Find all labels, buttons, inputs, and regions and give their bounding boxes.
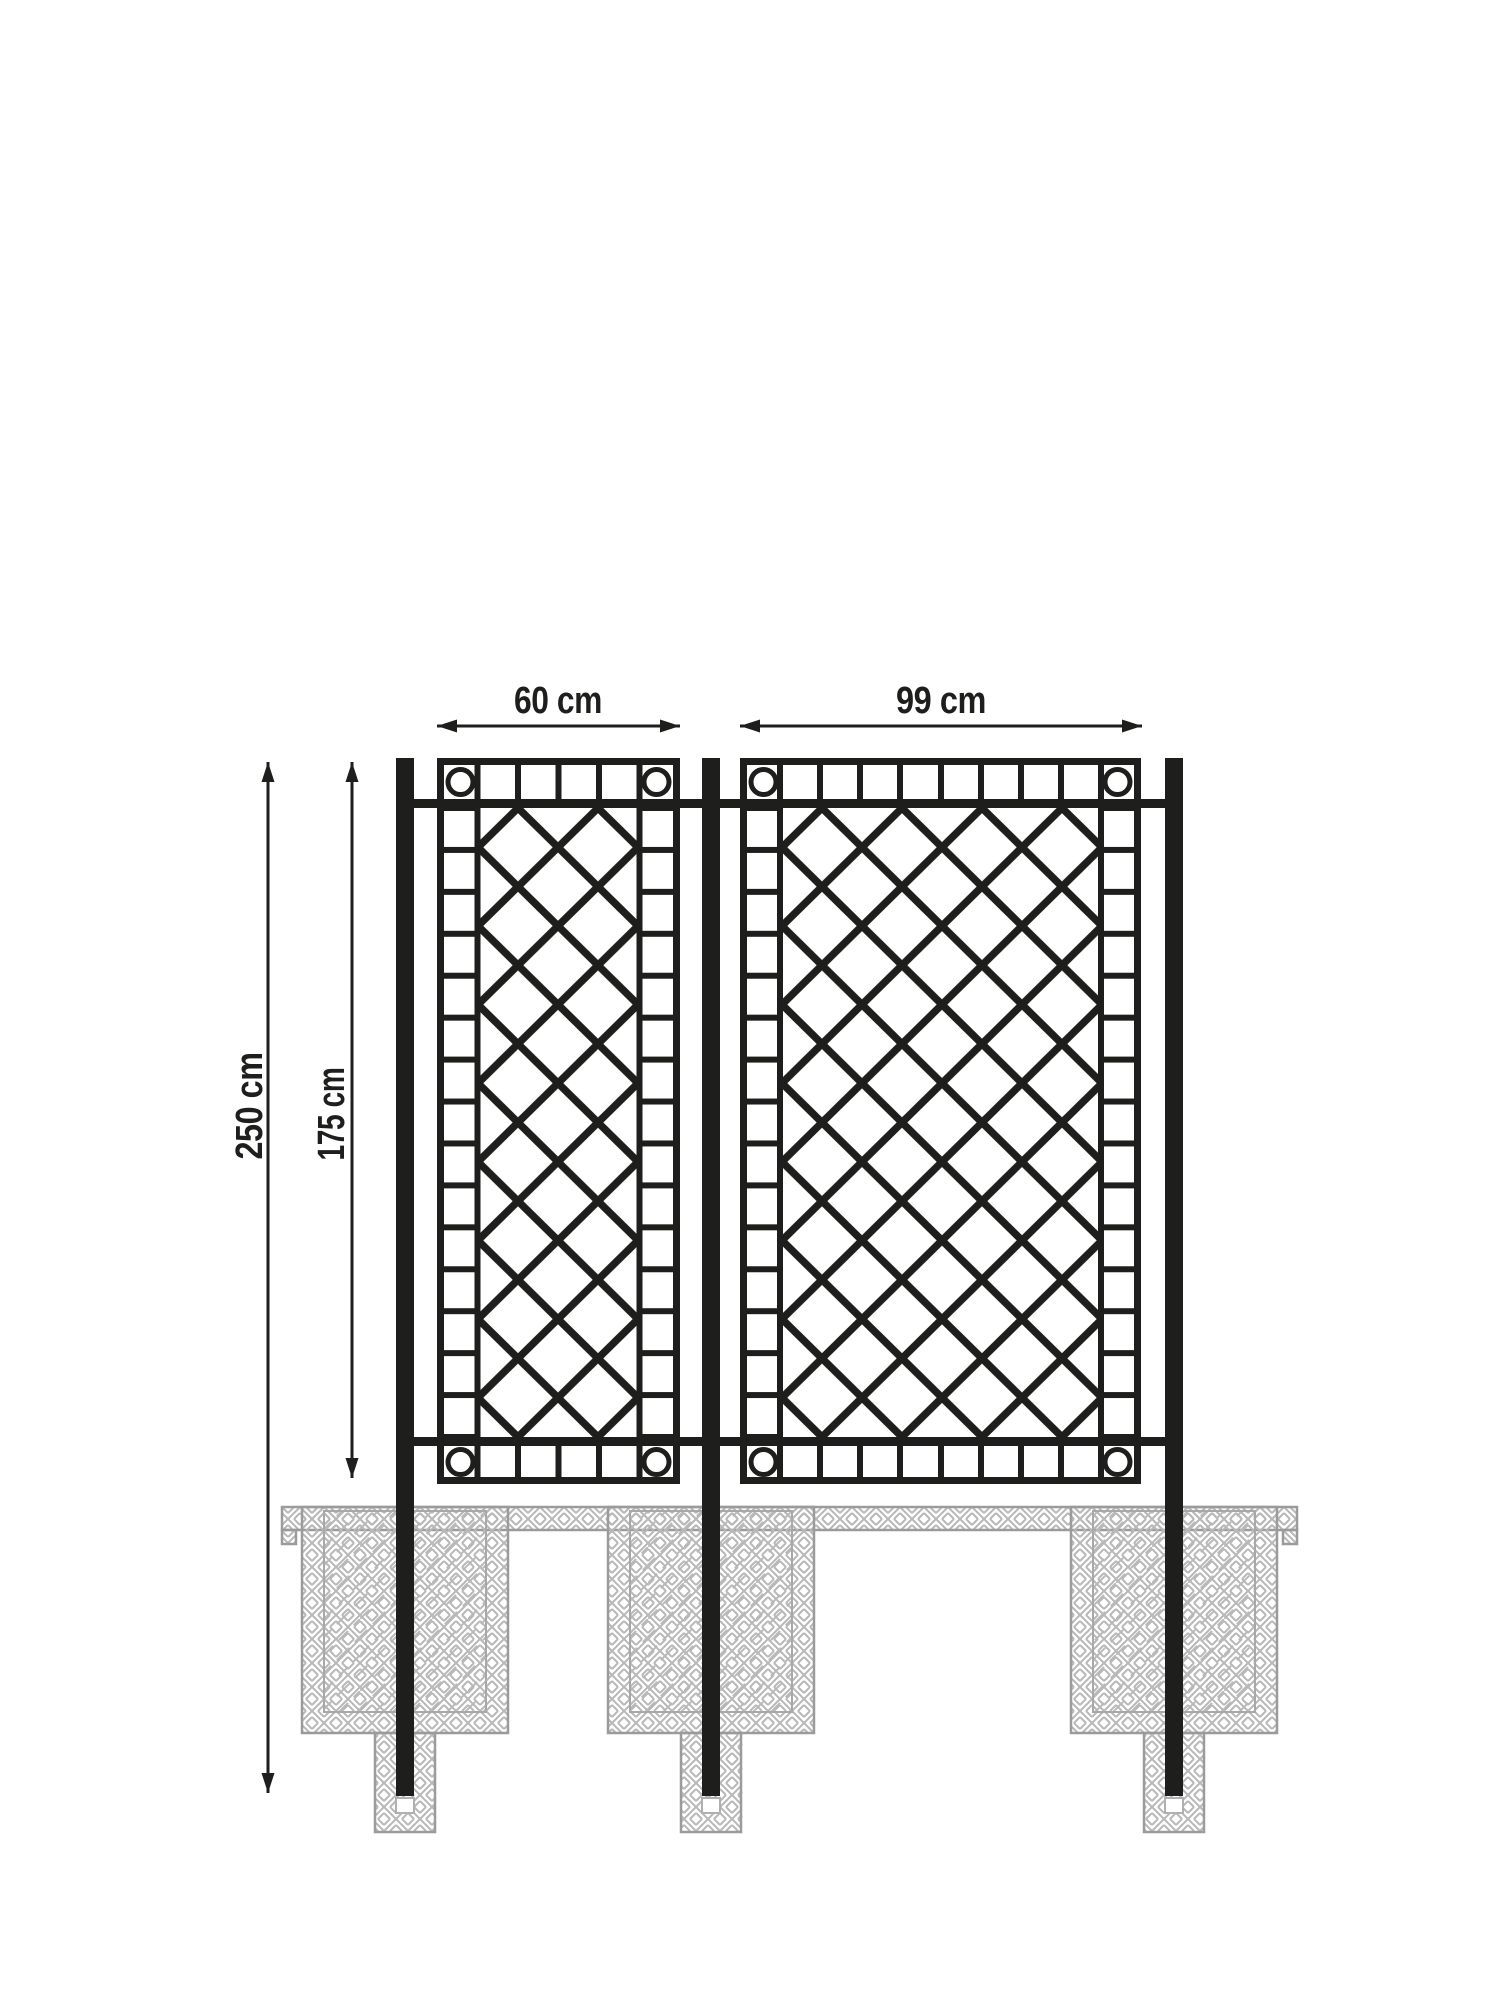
post-base-pad <box>1165 1798 1183 1813</box>
trellis-panel-60cm <box>441 762 677 1481</box>
overall-height-label: 250 cm <box>229 1053 271 1160</box>
ground-band-lip-right <box>1283 1530 1297 1544</box>
arrowhead-left-icon <box>437 720 457 733</box>
panel2-width-label: 99 cm <box>896 680 986 722</box>
dimension-panel2-width: 99 cm <box>740 680 1142 733</box>
ground-band-lip-left <box>282 1530 296 1544</box>
arrowhead-down-icon <box>346 1458 359 1478</box>
dimension-panel1-width: 60 cm <box>437 680 680 733</box>
panel-top-cells <box>780 764 1101 800</box>
trellis-panel-99cm <box>744 762 1138 1481</box>
top-rail <box>400 799 1180 808</box>
trellis-dimension-diagram: 60 cm 99 cm 250 cm 175 cm <box>0 0 1500 1998</box>
corner-ring <box>644 1450 669 1475</box>
foundation-cross-section <box>282 1507 1297 1832</box>
dimension-panel-height: 175 cm <box>311 762 359 1478</box>
arrowhead-right-icon <box>660 720 680 733</box>
post-base-pad <box>396 1798 414 1813</box>
corner-ring <box>1105 770 1130 795</box>
arrowhead-up-icon <box>346 762 359 782</box>
post-3 <box>1165 758 1183 1796</box>
corner-ring <box>1105 1450 1130 1475</box>
post-1 <box>396 758 414 1796</box>
post-base-pad <box>702 1798 720 1813</box>
arrowhead-up-icon <box>262 762 275 782</box>
panel-bottom-cells <box>478 1445 640 1478</box>
bottom-rail <box>400 1437 1180 1446</box>
corner-ring <box>751 1450 776 1475</box>
arrowhead-right-icon <box>1122 720 1142 733</box>
corner-ring <box>644 770 669 795</box>
corner-ring <box>751 770 776 795</box>
dimension-overall-height: 250 cm <box>229 762 275 1793</box>
post-2 <box>702 758 720 1796</box>
panel-left-cells <box>747 808 777 1437</box>
corner-ring <box>448 1450 473 1475</box>
panel-top-cells <box>478 764 640 800</box>
panel-left-cells <box>444 808 475 1437</box>
arrowhead-down-icon <box>262 1773 275 1793</box>
panel-bottom-cells <box>780 1445 1101 1478</box>
arrowhead-left-icon <box>740 720 760 733</box>
panel-lattice <box>783 808 1098 1437</box>
panel-height-label: 175 cm <box>311 1068 353 1161</box>
panel-lattice <box>481 808 637 1437</box>
corner-ring <box>448 770 473 795</box>
panel-right-cells <box>643 808 674 1437</box>
panel1-width-label: 60 cm <box>514 680 602 722</box>
diagram-page: 60 cm 99 cm 250 cm 175 cm <box>0 0 1500 1998</box>
panel-right-cells <box>1104 808 1134 1437</box>
